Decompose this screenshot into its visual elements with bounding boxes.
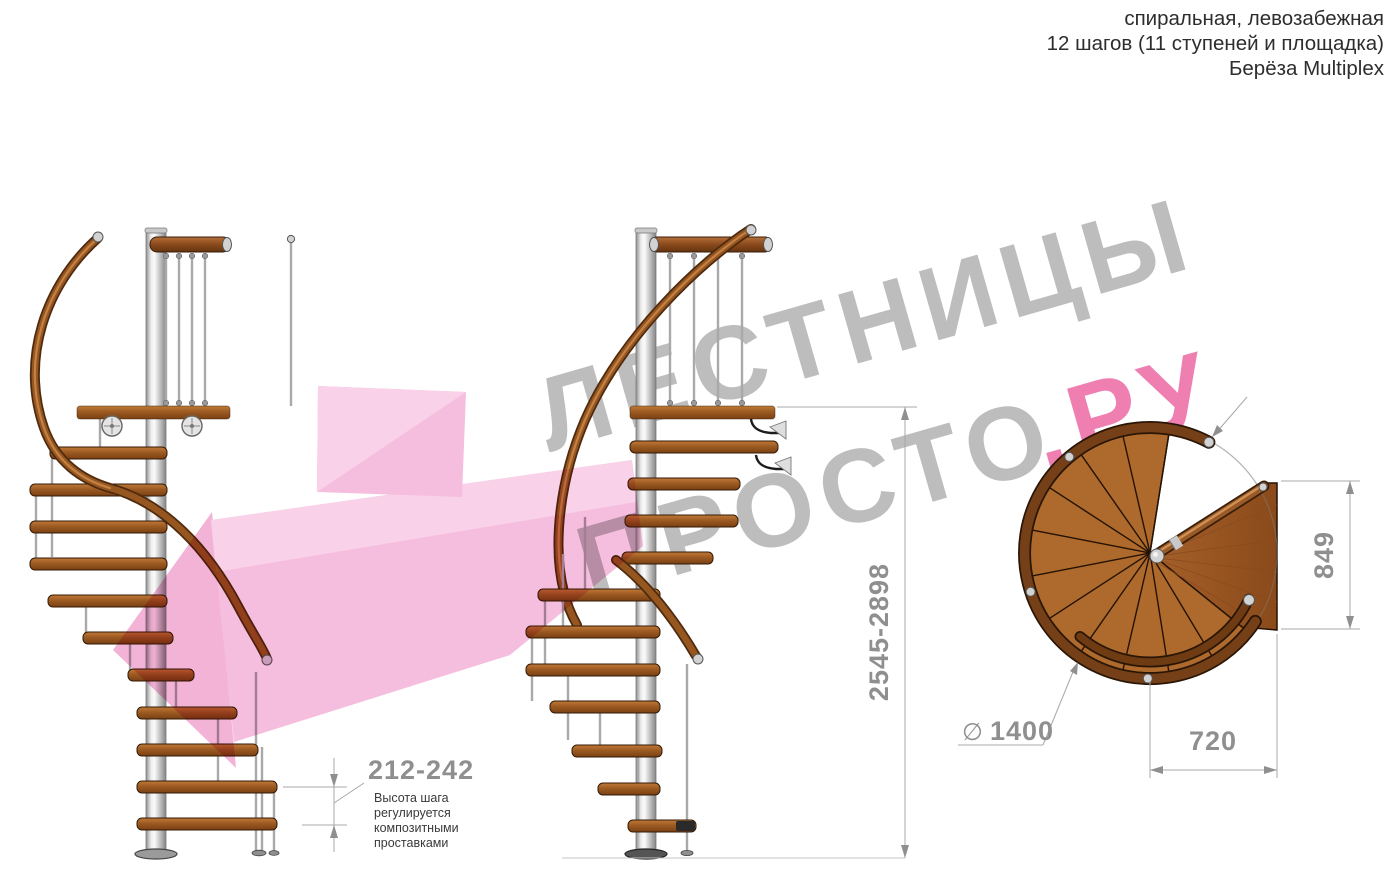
platform-rail-bar [150, 237, 230, 252]
wall-bracket [751, 419, 786, 439]
platform-rail-bar [650, 237, 772, 252]
dim-step-height-note-2: регулируется [374, 806, 451, 820]
pole-base-flange [135, 849, 177, 859]
rail-bar-end-cap [650, 238, 659, 252]
rod-foot [269, 851, 279, 856]
title-line-3: Берёза Multiplex [1229, 57, 1385, 80]
drawing-canvas: ЛЕСТНИЦЫ ПРОСТО .РУ спиральная, левозабе… [0, 0, 1400, 895]
pole-top-cap [145, 228, 167, 233]
platform-balusters [166, 240, 291, 406]
dim-step-height: 212-242 Высота шага регулируется компози… [283, 755, 474, 852]
plan-rail-top-cap [1259, 483, 1267, 491]
handrail-top-cap [93, 232, 103, 242]
title-block: спиральная, левозабежная 12 шагов (11 ст… [1047, 7, 1385, 80]
dim-step-height-note-4: проставками [374, 836, 448, 850]
dim-exit-width-value: 849 [1309, 531, 1339, 579]
pole-top-cap [635, 228, 657, 233]
dim-step-height-value: 212-242 [368, 755, 474, 785]
dim-platform-depth-value: 720 [1189, 726, 1237, 756]
rod-foot [681, 850, 693, 855]
plan-view [1023, 426, 1277, 683]
rail-bar-end-cap [764, 238, 773, 252]
plan-rail-end-cap [1244, 595, 1255, 606]
spiral-staircase-drawing: ЛЕСТНИЦЫ ПРОСТО .РУ спиральная, левозабе… [0, 0, 1400, 895]
diameter-symbol: ∅ [962, 719, 983, 746]
title-line-2: 12 шагов (11 ступеней и площадка) [1047, 32, 1384, 55]
dim-diameter-value: 1400 [990, 716, 1054, 746]
dim-step-height-note-3: композитными [374, 821, 459, 835]
platform-board [77, 406, 230, 419]
center-pole [146, 231, 166, 853]
handrail-end-cap [693, 654, 703, 664]
title-line-1: спиральная, левозабежная [1124, 7, 1384, 30]
baluster-collars [163, 235, 294, 405]
dim-total-height-value: 2545-2898 [864, 563, 894, 701]
composite-spacer [676, 821, 695, 831]
rail-bar-end-cap [223, 238, 232, 252]
handrail-top-cap [746, 225, 756, 235]
dim-step-height-note-1: Высота шага [374, 791, 449, 805]
rod-foot [252, 850, 266, 856]
dim-exit-width: 849 [1281, 481, 1360, 629]
platform-board [630, 406, 775, 419]
